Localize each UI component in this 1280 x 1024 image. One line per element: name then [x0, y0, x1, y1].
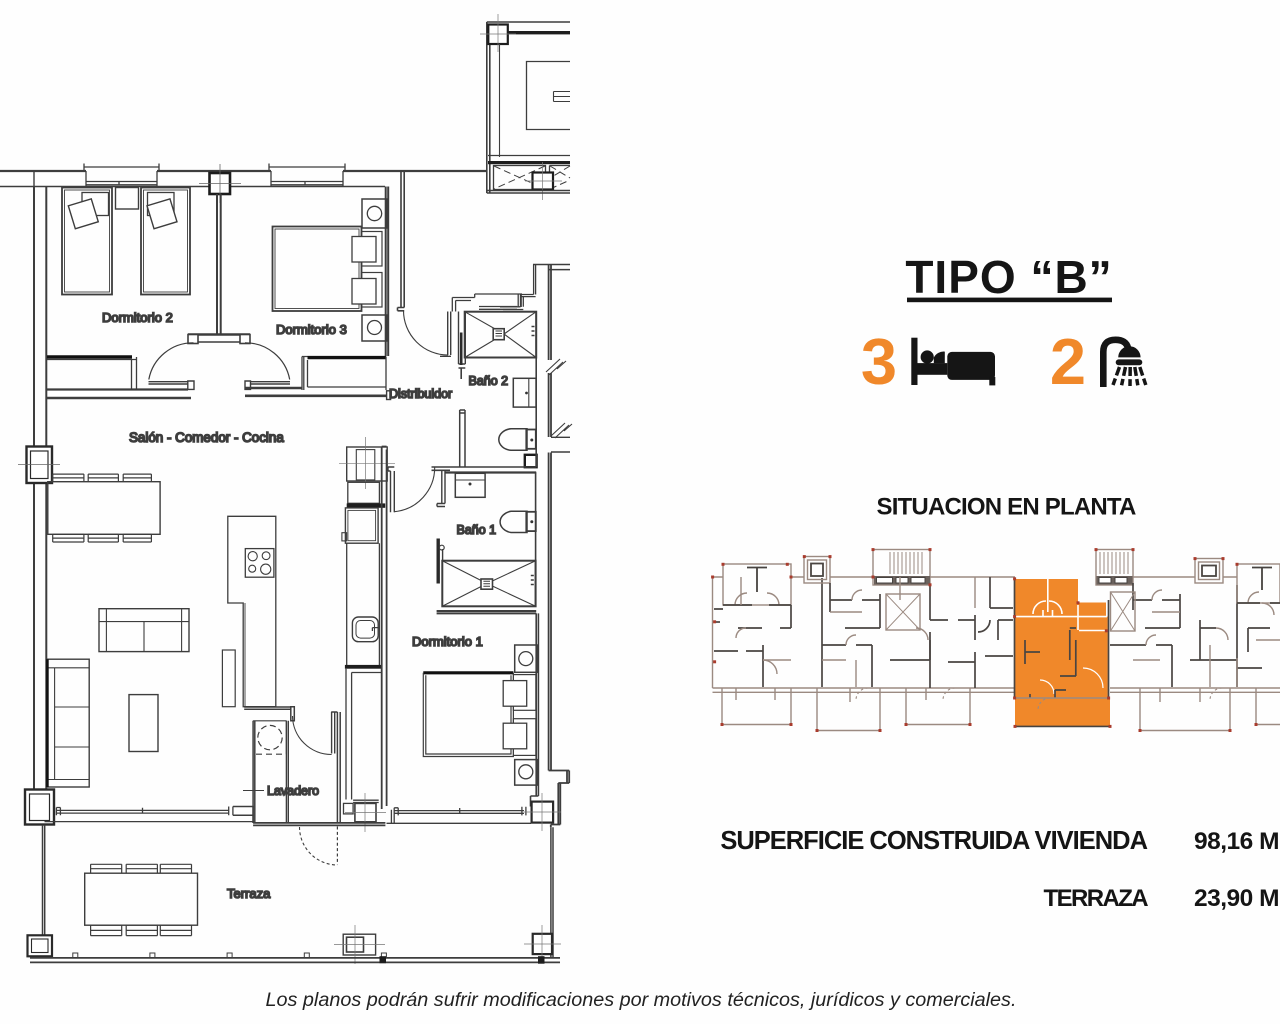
svg-text:Baño 2: Baño 2 — [469, 374, 509, 388]
svg-text:Lavadero: Lavadero — [267, 784, 319, 798]
svg-text:TERRAZA: TERRAZA — [1044, 885, 1149, 912]
svg-text:98,16 M: 98,16 M — [1194, 828, 1279, 855]
svg-text:TIPO “B”: TIPO “B” — [905, 251, 1112, 303]
svg-text:Baño 1: Baño 1 — [457, 523, 497, 537]
svg-text:23,90 M: 23,90 M — [1194, 885, 1279, 912]
svg-text:Salón - Comedor - Cocina: Salón - Comedor - Cocina — [129, 430, 284, 445]
svg-text:Terraza: Terraza — [227, 886, 271, 901]
svg-text:Dormitorio 3: Dormitorio 3 — [276, 322, 347, 337]
svg-text:Los planos podrán sufrir modif: Los planos podrán sufrir modificaciones … — [266, 989, 1017, 1011]
svg-text:Dormitorio 2: Dormitorio 2 — [102, 310, 173, 325]
svg-text:SITUACION EN PLANTA: SITUACION EN PLANTA — [876, 494, 1135, 521]
svg-text:3: 3 — [861, 325, 897, 398]
svg-text:Distribuidor: Distribuidor — [389, 387, 452, 401]
svg-text:Dormitorio 1: Dormitorio 1 — [412, 634, 483, 649]
svg-text:SUPERFICIE CONSTRUIDA VIVIENDA: SUPERFICIE CONSTRUIDA VIVIENDA — [720, 827, 1147, 855]
svg-text:2: 2 — [1050, 325, 1086, 398]
